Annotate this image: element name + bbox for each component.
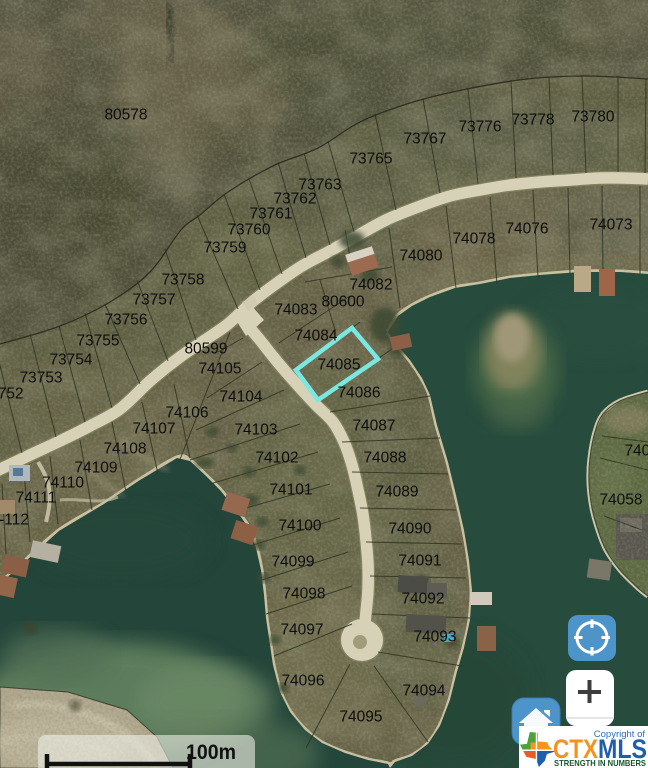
svg-text:74102: 74102 [255,450,298,467]
svg-text:74104: 74104 [219,389,262,406]
svg-text:80578: 80578 [104,107,147,124]
svg-text:74101: 74101 [269,482,312,499]
svg-text:73752: 73752 [0,386,24,403]
svg-text:73760: 73760 [227,222,270,239]
svg-text:74096: 74096 [281,673,324,690]
svg-text:73761: 73761 [249,206,292,223]
svg-text:74078: 74078 [452,231,495,248]
svg-text:74080: 74080 [399,248,442,265]
svg-text:74108: 74108 [103,441,146,458]
svg-text:74088: 74088 [363,450,406,467]
svg-text:74094: 74094 [402,683,445,700]
svg-text:74083: 74083 [274,302,317,319]
svg-text:STRENGTH IN NUMBERS: STRENGTH IN NUMBERS [554,758,646,768]
svg-text:74105: 74105 [198,361,241,378]
svg-text:74097: 74097 [280,622,323,639]
svg-text:80599: 80599 [184,341,227,358]
svg-text:74082: 74082 [349,277,392,294]
svg-text:74073: 74073 [589,217,632,234]
svg-text:74092: 74092 [401,591,444,608]
svg-text:73763: 73763 [298,177,341,194]
svg-text:73756: 73756 [104,312,147,329]
svg-text:80600: 80600 [321,294,364,311]
svg-text:74087: 74087 [352,418,395,435]
svg-text:73780: 73780 [571,109,614,126]
svg-text:100m: 100m [186,741,236,764]
svg-text:73755: 73755 [76,333,119,350]
svg-text:74085: 74085 [317,357,360,374]
svg-text:74093: 74093 [413,629,456,646]
svg-text:74090: 74090 [388,521,431,538]
svg-text:74107: 74107 [132,421,175,438]
svg-text:73754: 73754 [49,352,92,369]
svg-text:74106: 74106 [165,405,208,422]
svg-text:74086: 74086 [337,385,380,402]
svg-text:73759: 73759 [203,240,246,257]
svg-text:74084: 74084 [294,328,337,345]
svg-text:73778: 73778 [511,112,554,129]
svg-text:74091: 74091 [398,553,441,570]
svg-text:73765: 73765 [349,151,392,168]
svg-text:-112: -112 [0,512,29,529]
svg-text:74100: 74100 [278,518,321,535]
svg-text:73767: 73767 [403,131,446,148]
svg-text:74076: 74076 [505,221,548,238]
svg-text:74089: 74089 [375,484,418,501]
svg-text:74111: 74111 [16,490,57,507]
svg-text:74054: 74054 [624,443,648,460]
svg-text:73776: 73776 [458,119,501,136]
svg-text:73753: 73753 [19,370,62,387]
svg-text:73757: 73757 [132,292,175,309]
svg-text:73758: 73758 [161,272,204,289]
svg-text:74099: 74099 [271,554,314,571]
svg-text:74058: 74058 [599,492,642,509]
svg-text:74095: 74095 [339,709,382,726]
svg-text:74098: 74098 [282,586,325,603]
svg-text:74103: 74103 [234,422,277,439]
